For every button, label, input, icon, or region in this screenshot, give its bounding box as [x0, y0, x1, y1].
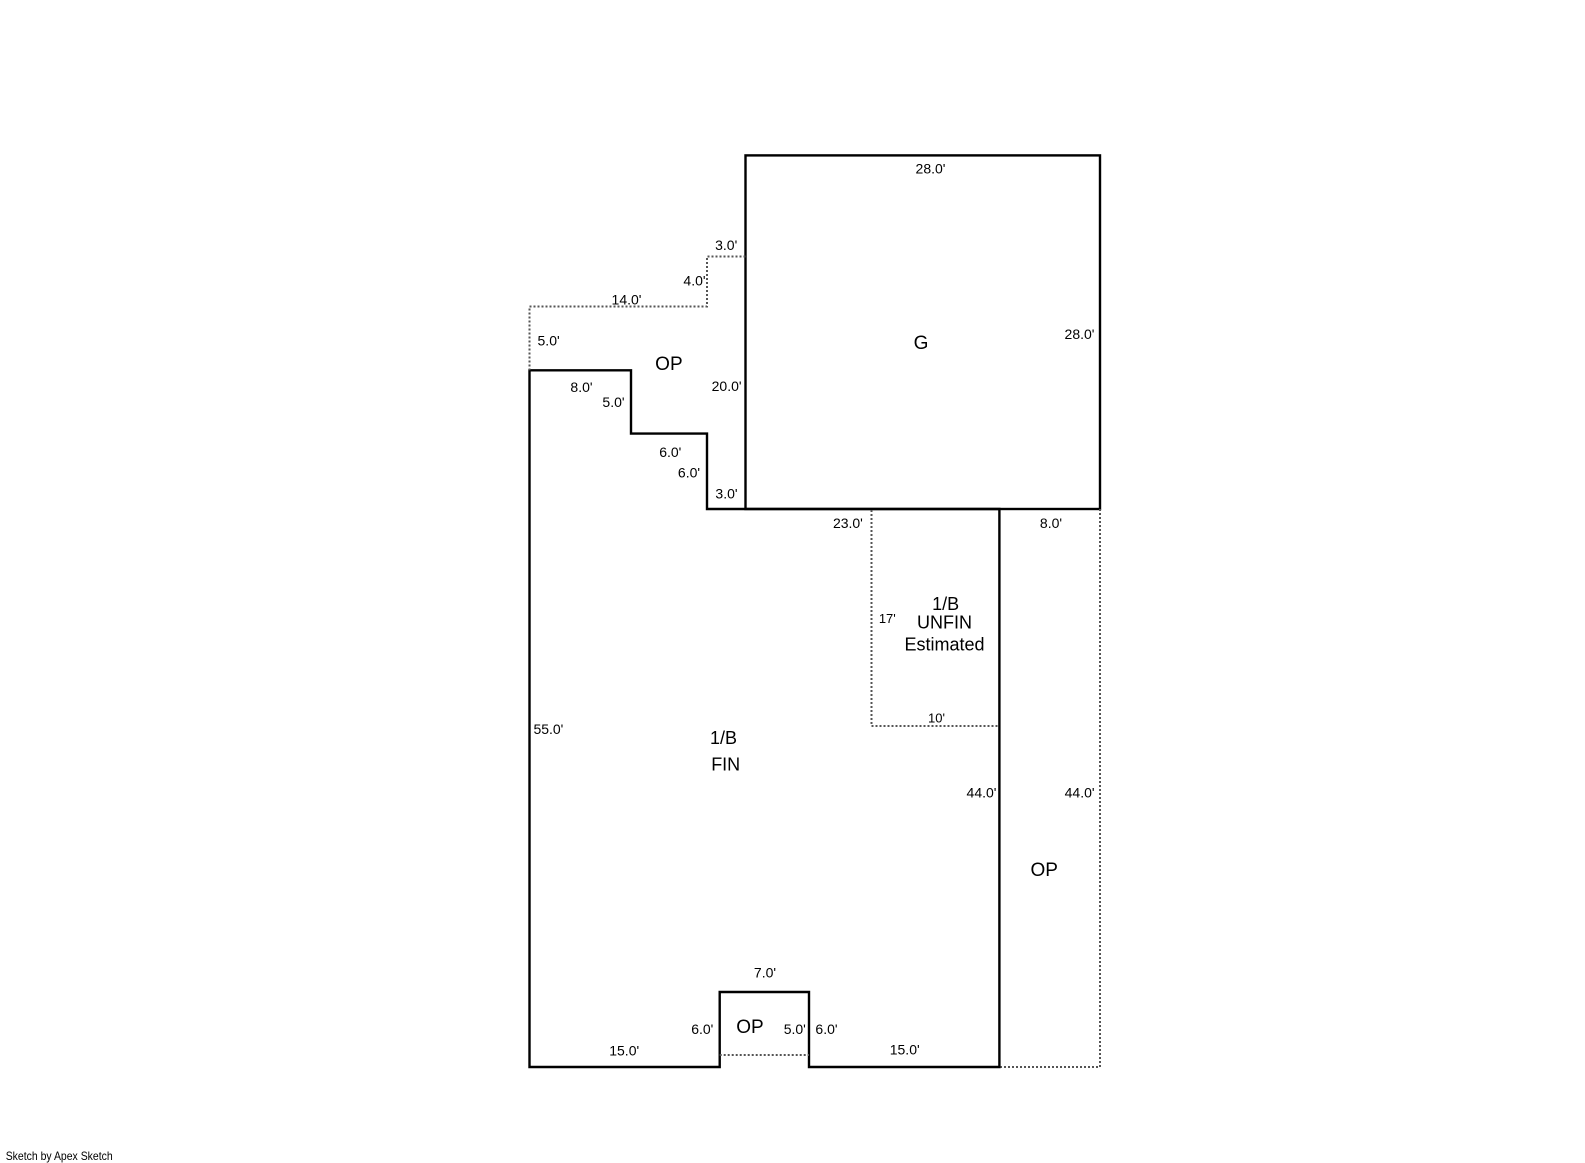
svg-text:15.0': 15.0' — [890, 1042, 920, 1058]
svg-text:6.0': 6.0' — [678, 465, 700, 481]
svg-text:6.0': 6.0' — [691, 1021, 713, 1037]
svg-text:20.0': 20.0' — [712, 378, 742, 394]
svg-text:OP: OP — [736, 1017, 763, 1038]
svg-text:4.0': 4.0' — [683, 273, 705, 289]
svg-text:8.0': 8.0' — [570, 379, 592, 395]
svg-text:Estimated: Estimated — [904, 635, 984, 655]
svg-text:UNFIN: UNFIN — [917, 612, 972, 632]
svg-text:FIN: FIN — [711, 755, 740, 775]
svg-text:10': 10' — [928, 711, 945, 726]
svg-text:8.0': 8.0' — [1040, 515, 1062, 531]
svg-text:6.0': 6.0' — [815, 1021, 837, 1037]
svg-text:44.0': 44.0' — [967, 784, 997, 800]
svg-text:5.0': 5.0' — [538, 332, 560, 348]
svg-text:3.0': 3.0' — [715, 237, 737, 253]
svg-text:3.0': 3.0' — [715, 486, 737, 502]
svg-text:G: G — [914, 333, 929, 354]
svg-text:OP: OP — [1030, 860, 1057, 881]
svg-text:23.0': 23.0' — [833, 515, 863, 531]
svg-text:OP: OP — [655, 354, 682, 375]
svg-text:5.0': 5.0' — [602, 394, 624, 410]
svg-text:15.0': 15.0' — [609, 1043, 639, 1059]
svg-text:44.0': 44.0' — [1065, 784, 1095, 800]
svg-text:1/B: 1/B — [932, 594, 959, 614]
svg-text:1/B: 1/B — [710, 728, 737, 748]
svg-text:55.0': 55.0' — [533, 721, 563, 737]
svg-text:28.0': 28.0' — [1065, 326, 1095, 342]
svg-text:Sketch by Apex Sketch: Sketch by Apex Sketch — [6, 1149, 113, 1163]
svg-text:5.0': 5.0' — [784, 1021, 806, 1037]
svg-text:6.0': 6.0' — [659, 444, 681, 460]
svg-text:28.0': 28.0' — [916, 161, 946, 177]
svg-text:14.0': 14.0' — [612, 291, 642, 307]
svg-text:17': 17' — [879, 611, 896, 626]
svg-text:7.0': 7.0' — [754, 965, 776, 981]
